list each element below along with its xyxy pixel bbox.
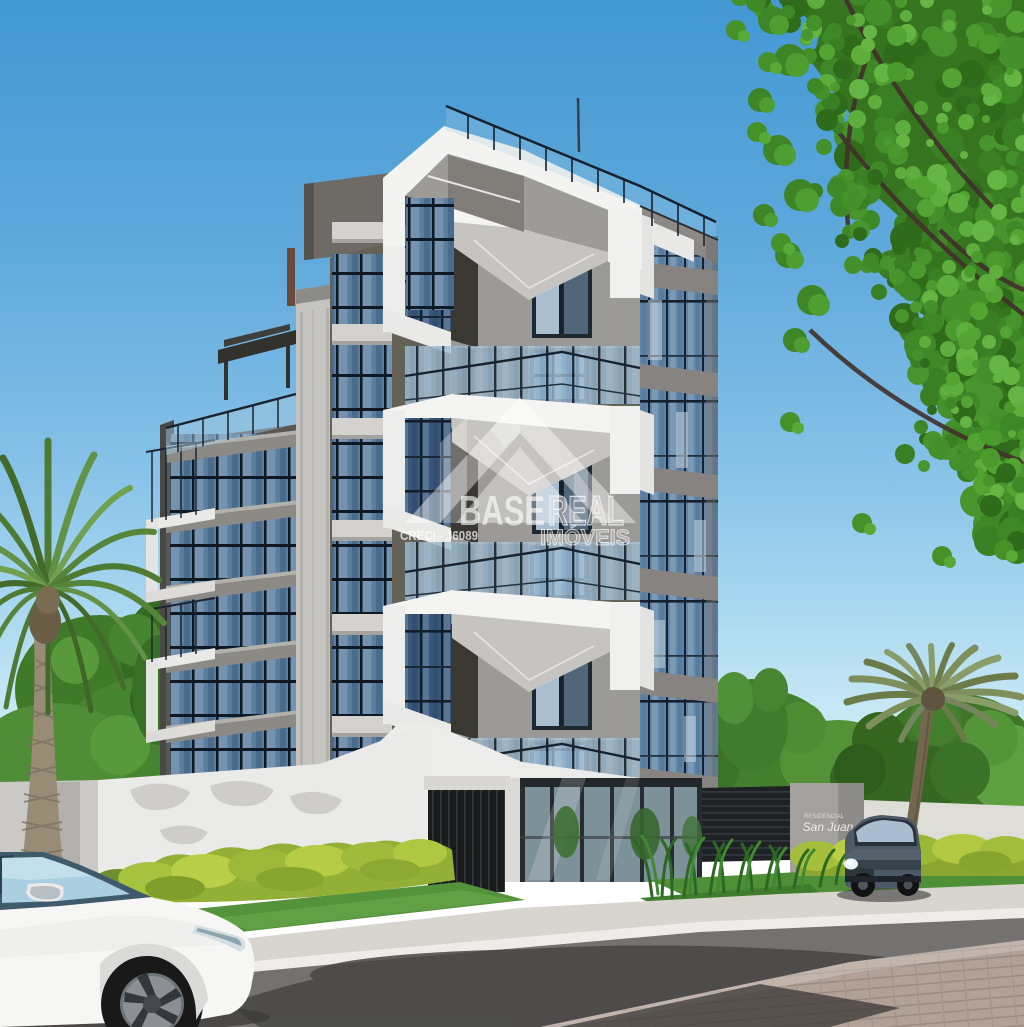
svg-text:San Juan: San Juan <box>803 820 854 834</box>
svg-text:CRECI - J6089: CRECI - J6089 <box>400 529 478 543</box>
svg-text:RESIDENCIAL: RESIDENCIAL <box>804 814 845 820</box>
svg-text:IMÓVEIS: IMÓVEIS <box>540 525 630 550</box>
svg-text:BASE: BASE <box>459 487 545 534</box>
